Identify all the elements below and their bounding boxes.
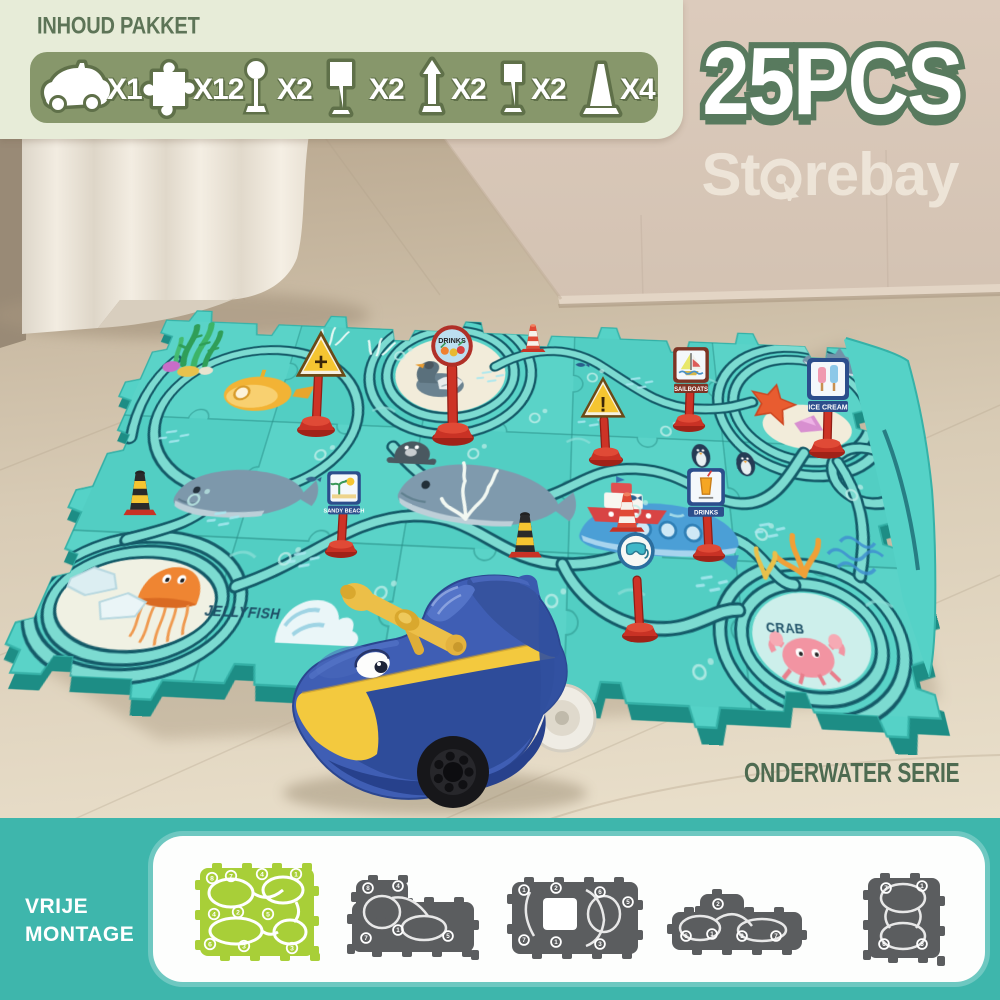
svg-text:1: 1 bbox=[710, 931, 714, 938]
svg-text:8: 8 bbox=[366, 885, 370, 892]
svg-text:2: 2 bbox=[716, 901, 720, 908]
svg-text:3: 3 bbox=[290, 945, 294, 952]
svg-text:1: 1 bbox=[522, 887, 526, 894]
svg-text:4: 4 bbox=[396, 883, 400, 890]
svg-text:3: 3 bbox=[242, 943, 246, 950]
svg-text:3: 3 bbox=[740, 933, 744, 940]
svg-text:5: 5 bbox=[626, 899, 630, 906]
svg-text:7: 7 bbox=[774, 933, 778, 940]
svg-text:7: 7 bbox=[229, 873, 233, 880]
svg-text:5: 5 bbox=[446, 933, 450, 940]
svg-text:7: 7 bbox=[364, 935, 368, 942]
svg-text:4: 4 bbox=[260, 871, 264, 878]
svg-text:3: 3 bbox=[598, 941, 602, 948]
svg-text:7: 7 bbox=[884, 885, 888, 892]
svg-text:6: 6 bbox=[208, 941, 212, 948]
svg-text:1: 1 bbox=[920, 883, 924, 890]
svg-text:2: 2 bbox=[236, 909, 240, 916]
svg-text:1: 1 bbox=[294, 871, 298, 878]
svg-text:5: 5 bbox=[920, 941, 924, 948]
svg-text:6: 6 bbox=[598, 889, 602, 896]
svg-text:7: 7 bbox=[522, 937, 526, 944]
svg-text:8: 8 bbox=[210, 875, 214, 882]
svg-text:5: 5 bbox=[266, 911, 270, 918]
svg-text:1: 1 bbox=[554, 939, 558, 946]
svg-text:6: 6 bbox=[882, 941, 886, 948]
svg-text:4: 4 bbox=[212, 911, 216, 918]
svg-text:6: 6 bbox=[684, 933, 688, 940]
svg-text:2: 2 bbox=[554, 885, 558, 892]
svg-text:1: 1 bbox=[396, 927, 400, 934]
